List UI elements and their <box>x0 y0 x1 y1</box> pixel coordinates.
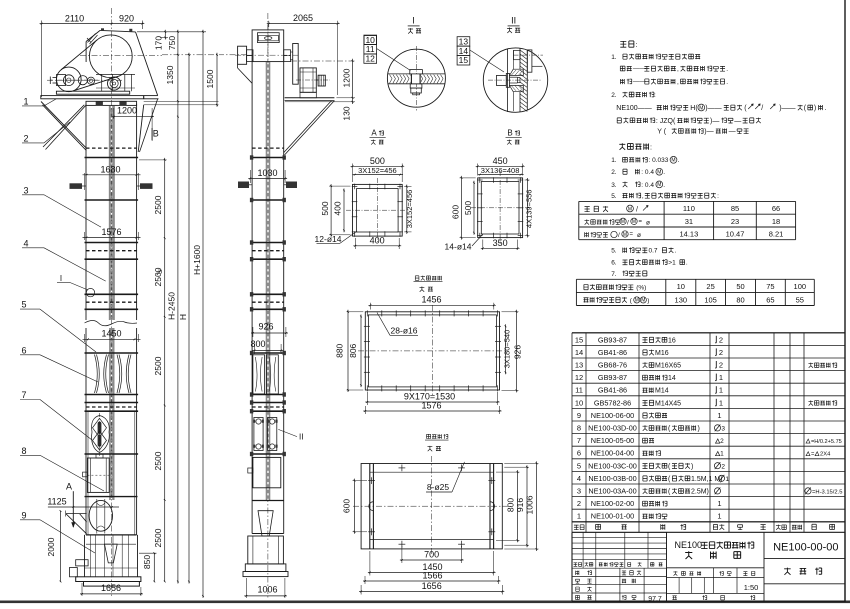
svg-text:400: 400 <box>370 236 385 246</box>
svg-text:NE100-06-00: NE100-06-00 <box>591 411 634 420</box>
svg-text:1656: 1656 <box>101 583 121 593</box>
svg-text:H: H <box>178 314 188 320</box>
svg-text:/: / <box>627 219 629 226</box>
svg-text:105: 105 <box>704 296 717 305</box>
svg-text:1200: 1200 <box>117 106 137 116</box>
svg-text:75: 75 <box>766 282 774 291</box>
svg-text:Y (: Y ( <box>657 128 666 135</box>
svg-text:NE100-03B-00: NE100-03B-00 <box>588 474 636 483</box>
svg-text:23: 23 <box>731 217 739 226</box>
svg-text:9: 9 <box>577 411 581 420</box>
svg-text:2000: 2000 <box>46 537 56 556</box>
svg-text:1.: 1. <box>611 157 617 164</box>
svg-text:6: 6 <box>577 449 581 458</box>
svg-text:850: 850 <box>142 555 152 569</box>
svg-text:.: . <box>686 260 688 267</box>
svg-text:916: 916 <box>515 498 525 512</box>
svg-text:): ) <box>691 463 693 470</box>
svg-text:1680: 1680 <box>100 165 120 175</box>
svg-text:.: . <box>663 182 665 189</box>
svg-text:II: II <box>299 433 303 442</box>
svg-text:=: = <box>639 219 643 225</box>
svg-text:130: 130 <box>675 296 688 305</box>
svg-text:926: 926 <box>258 322 273 332</box>
svg-text:8-ø25: 8-ø25 <box>427 482 449 492</box>
svg-text:/: / <box>618 232 620 239</box>
svg-text:14: 14 <box>575 348 583 357</box>
svg-text:): ) <box>814 105 816 112</box>
svg-text:1030: 1030 <box>257 168 277 178</box>
svg-text:H-2450: H-2450 <box>167 292 177 320</box>
svg-text::: : <box>636 40 638 49</box>
svg-text:GB93-87: GB93-87 <box>598 335 627 344</box>
svg-text:10: 10 <box>677 282 685 291</box>
svg-text:/: / <box>636 207 638 214</box>
svg-text:,: , <box>642 193 644 200</box>
svg-text:600: 600 <box>451 205 461 219</box>
svg-text:M: M <box>699 105 703 111</box>
svg-text:1500: 1500 <box>205 69 215 88</box>
svg-text:.: . <box>675 248 677 255</box>
svg-text:/: / <box>761 105 763 112</box>
svg-text:16: 16 <box>668 337 676 344</box>
svg-text:14-ø14: 14-ø14 <box>445 242 472 252</box>
svg-text:80: 80 <box>736 296 744 305</box>
svg-text:: 0.033: : 0.033 <box>649 157 669 164</box>
svg-text:1: 1 <box>725 476 729 483</box>
svg-text:1566: 1566 <box>422 571 442 581</box>
svg-text:750: 750 <box>167 36 177 50</box>
svg-text:,: , <box>677 79 679 86</box>
svg-text:8.21: 8.21 <box>769 230 784 239</box>
svg-text:NE100-05-00: NE100-05-00 <box>591 436 634 445</box>
svg-text:—: — <box>734 118 741 125</box>
svg-text:55: 55 <box>796 296 804 305</box>
svg-text:700: 700 <box>424 550 439 560</box>
svg-text:1: 1 <box>719 373 723 382</box>
svg-text:3X152=456: 3X152=456 <box>358 166 397 175</box>
svg-text:.: . <box>678 157 680 164</box>
svg-text:10: 10 <box>575 398 583 407</box>
svg-text:18: 18 <box>772 217 780 226</box>
svg-text:6: 6 <box>21 345 26 355</box>
svg-text:12: 12 <box>575 373 583 382</box>
svg-text:11: 11 <box>575 386 583 395</box>
svg-text:9: 9 <box>21 510 26 520</box>
svg-text:I: I <box>412 16 415 26</box>
svg-text:1: 1 <box>577 512 581 521</box>
svg-text:2500: 2500 <box>153 451 163 470</box>
svg-text:M: M <box>635 298 639 304</box>
svg-text:3X152=456: 3X152=456 <box>405 190 414 229</box>
svg-text:2065: 2065 <box>293 13 313 23</box>
svg-text:NE100-04-00: NE100-04-00 <box>591 449 634 458</box>
svg-text:)——: )—— <box>705 105 721 112</box>
svg-text:2500: 2500 <box>153 195 163 214</box>
svg-text:920: 920 <box>119 14 134 24</box>
svg-text:NE100——: NE100—— <box>616 105 651 112</box>
svg-text:1:50: 1:50 <box>744 583 759 592</box>
svg-text:4X139=556: 4X139=556 <box>524 190 533 229</box>
svg-text:2.: 2. <box>611 92 617 99</box>
svg-text:1125: 1125 <box>47 497 66 507</box>
svg-text:B: B <box>153 129 159 139</box>
svg-text:5.: 5. <box>611 248 617 255</box>
svg-text:2500: 2500 <box>153 356 163 375</box>
svg-text:GB93-87: GB93-87 <box>598 373 627 382</box>
svg-text:13: 13 <box>575 361 583 370</box>
svg-text:7: 7 <box>21 390 26 400</box>
svg-text:3X136=408: 3X136=408 <box>481 166 520 175</box>
svg-text:.: . <box>726 79 728 86</box>
svg-text:15: 15 <box>575 335 583 344</box>
svg-text:13: 13 <box>459 36 469 46</box>
svg-text:1.5M,1 M): 1.5M,1 M) <box>691 476 723 483</box>
svg-text:(%): (%) <box>636 285 646 292</box>
svg-text::: : <box>654 92 656 99</box>
svg-text:65: 65 <box>766 296 774 305</box>
svg-text:M: M <box>657 170 661 176</box>
svg-text:3.: 3. <box>611 182 617 189</box>
svg-text:1006: 1006 <box>257 585 277 595</box>
svg-text:1: 1 <box>719 386 723 395</box>
svg-text:66: 66 <box>772 204 780 213</box>
svg-text:M: M <box>623 232 627 238</box>
svg-text:: 0.4: : 0.4 <box>641 182 654 189</box>
svg-text:806: 806 <box>348 343 358 357</box>
svg-text:GB68-76: GB68-76 <box>598 361 627 370</box>
svg-text:5: 5 <box>577 461 581 470</box>
svg-text:A: A <box>66 482 72 492</box>
svg-text:600: 600 <box>342 499 352 513</box>
svg-text:100: 100 <box>794 282 807 291</box>
svg-text:800: 800 <box>506 498 516 512</box>
svg-text:12: 12 <box>365 54 375 64</box>
svg-text:1456: 1456 <box>421 295 441 305</box>
svg-text:GB5782-86: GB5782-86 <box>594 398 631 407</box>
svg-text:)—: )— <box>704 128 713 135</box>
svg-text:——: —— <box>633 78 647 85</box>
svg-text:2: 2 <box>719 335 723 344</box>
svg-text:2: 2 <box>721 463 725 470</box>
svg-text:800: 800 <box>250 339 265 349</box>
svg-text:450: 450 <box>493 156 508 166</box>
svg-text:): ) <box>698 426 700 433</box>
svg-text:15: 15 <box>459 55 469 65</box>
svg-text:A: A <box>371 128 377 137</box>
svg-text:.: . <box>684 54 686 61</box>
svg-text:M16: M16 <box>655 350 669 357</box>
svg-text:1350: 1350 <box>165 65 175 84</box>
svg-text:25: 25 <box>706 282 714 291</box>
svg-text:1576: 1576 <box>101 227 121 237</box>
svg-text:—: — <box>729 128 736 135</box>
svg-text:14.13: 14.13 <box>680 230 699 239</box>
svg-text:M: M <box>641 298 645 304</box>
svg-text:=: = <box>630 232 634 238</box>
svg-text:.: . <box>663 169 665 176</box>
svg-text:: JZQ(: : JZQ( <box>656 118 676 125</box>
svg-text::: : <box>650 143 652 152</box>
svg-text:NE100-03D-00: NE100-03D-00 <box>588 424 637 433</box>
svg-text:2.: 2. <box>611 169 617 176</box>
svg-text:M: M <box>657 182 661 188</box>
svg-text:II: II <box>511 16 516 26</box>
svg-text:5.: 5. <box>611 193 617 200</box>
svg-text:——: —— <box>633 65 647 72</box>
svg-text:3: 3 <box>721 426 725 433</box>
svg-text:NE100-01-00: NE100-01-00 <box>591 512 634 521</box>
svg-text:0.7: 0.7 <box>649 248 658 255</box>
svg-text:B: B <box>507 128 512 137</box>
svg-text:M: M <box>628 206 632 212</box>
svg-text:2110: 2110 <box>65 14 84 24</box>
svg-text:=H/0.2+5.75: =H/0.2+5.75 <box>811 439 842 445</box>
svg-text:7: 7 <box>577 436 581 445</box>
svg-text:8: 8 <box>577 424 581 433</box>
svg-text:1: 1 <box>719 398 723 407</box>
svg-text:50: 50 <box>736 282 744 291</box>
svg-text:31: 31 <box>685 217 693 226</box>
svg-text:.: . <box>825 105 827 112</box>
svg-text:10.47: 10.47 <box>726 230 745 239</box>
svg-text:NE100-03C-00: NE100-03C-00 <box>588 461 637 470</box>
svg-text:1450: 1450 <box>101 329 121 339</box>
svg-text:>1: >1 <box>668 260 676 267</box>
svg-text:1.: 1. <box>611 54 617 61</box>
svg-text:1: 1 <box>717 512 721 521</box>
svg-text:2: 2 <box>719 348 723 357</box>
svg-text:2X4: 2X4 <box>820 452 831 458</box>
svg-text:4: 4 <box>23 238 28 248</box>
svg-text:14: 14 <box>668 375 676 382</box>
svg-text:GB41-86: GB41-86 <box>598 386 627 395</box>
svg-text:1006: 1006 <box>525 495 535 514</box>
svg-text:110: 110 <box>683 204 695 213</box>
svg-text:2: 2 <box>23 133 28 143</box>
svg-text:2: 2 <box>577 499 581 508</box>
svg-text:M16X65: M16X65 <box>655 363 681 370</box>
svg-text:): ) <box>647 297 649 304</box>
svg-text:ø: ø <box>646 219 650 226</box>
svg-text::: : <box>717 193 719 200</box>
svg-text:2500: 2500 <box>153 528 163 547</box>
svg-text:GB41-86: GB41-86 <box>598 348 627 357</box>
svg-text:500: 500 <box>463 201 473 215</box>
svg-text:NE100-02-00: NE100-02-00 <box>591 499 634 508</box>
svg-text:5: 5 <box>21 300 26 310</box>
svg-text:6.: 6. <box>611 260 617 267</box>
svg-text:1576: 1576 <box>421 401 441 411</box>
svg-text:1200: 1200 <box>341 68 351 87</box>
svg-text:I: I <box>60 274 62 283</box>
svg-text:H(: H( <box>690 105 698 112</box>
svg-text:880: 880 <box>335 343 345 357</box>
svg-text:)——: )—— <box>779 105 795 112</box>
svg-text:M14: M14 <box>655 388 669 395</box>
svg-text:1: 1 <box>720 451 724 458</box>
svg-text:ø: ø <box>637 232 641 239</box>
svg-text:500: 500 <box>320 201 330 215</box>
svg-text:12-ø14: 12-ø14 <box>315 234 342 244</box>
svg-text:NE100-03A-00: NE100-03A-00 <box>588 487 636 496</box>
svg-text:97.7: 97.7 <box>648 596 662 603</box>
svg-text:8: 8 <box>21 446 26 456</box>
svg-text:350: 350 <box>493 238 508 248</box>
svg-text:2.5M): 2.5M) <box>691 489 709 496</box>
svg-text:H+1600: H+1600 <box>192 245 202 275</box>
svg-text:)—: )— <box>710 118 719 125</box>
svg-text:NE100-00-00: NE100-00-00 <box>773 542 838 554</box>
svg-text:500: 500 <box>370 156 385 166</box>
svg-text:M: M <box>632 219 636 225</box>
svg-text::: : <box>646 271 648 278</box>
svg-text:3: 3 <box>23 185 28 195</box>
svg-text:28-ø16: 28-ø16 <box>391 326 418 336</box>
svg-text:2: 2 <box>719 361 723 370</box>
svg-text:M14X45: M14X45 <box>655 400 681 407</box>
svg-text:3: 3 <box>577 487 581 496</box>
svg-text:M: M <box>621 219 625 225</box>
svg-text:400: 400 <box>332 201 342 215</box>
svg-text:1: 1 <box>717 499 721 508</box>
svg-text:,: , <box>677 66 679 73</box>
svg-text:85: 85 <box>731 204 739 213</box>
svg-text:2: 2 <box>720 438 724 445</box>
svg-text:.: . <box>726 66 728 73</box>
svg-text:1: 1 <box>717 411 721 420</box>
svg-text:4: 4 <box>577 474 581 483</box>
svg-text:7.: 7. <box>611 271 617 278</box>
svg-text:3X180=540: 3X180=540 <box>502 330 511 369</box>
svg-text:1656: 1656 <box>422 581 442 591</box>
svg-text:1: 1 <box>23 96 28 106</box>
svg-text:=H-3.15/2.5: =H-3.15/2.5 <box>812 490 842 496</box>
svg-text:NE100: NE100 <box>675 540 703 550</box>
svg-text:170: 170 <box>153 36 163 50</box>
svg-text:130: 130 <box>341 106 351 120</box>
svg-text:926: 926 <box>512 345 522 359</box>
svg-text:M: M <box>671 158 675 164</box>
svg-text:: 0.4: : 0.4 <box>641 169 654 176</box>
